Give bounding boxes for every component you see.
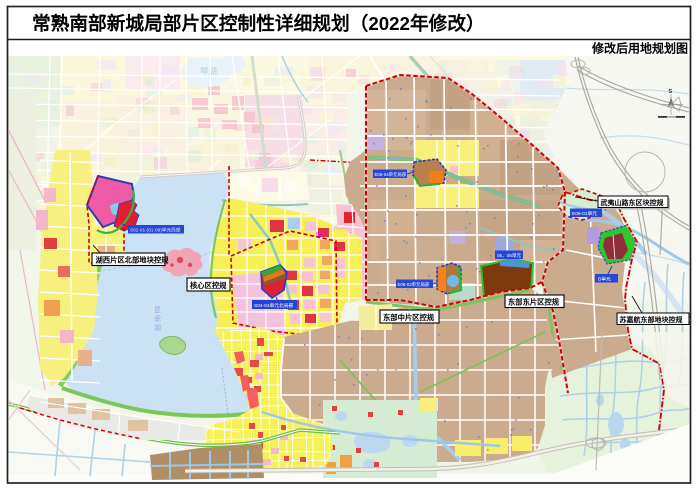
- svg-text:E08-02单元局部: E08-02单元局部: [398, 281, 430, 288]
- svg-text:修改后用地规划图: 修改后用地规划图: [591, 41, 688, 56]
- svg-text:S02-01-(01-09)单元局部: S02-01-(01-09)单元局部: [130, 227, 181, 234]
- svg-text:湖西片区北部地块控规: 湖西片区北部地块控规: [96, 256, 170, 265]
- svg-text:核心区控规: 核心区控规: [190, 281, 227, 290]
- svg-text:东部中片区控规: 东部中片区控规: [383, 313, 435, 322]
- svg-text:S: S: [669, 89, 673, 95]
- svg-text:昆承湖: 昆承湖: [154, 306, 162, 333]
- svg-text:05、06单元: 05、06单元: [497, 252, 521, 259]
- svg-text:苏嘉航东部地块控规: 苏嘉航东部地块控规: [620, 315, 683, 324]
- svg-text:S04-04单元北局部: S04-04单元北局部: [254, 302, 294, 309]
- svg-text:B单元: B单元: [598, 276, 611, 283]
- svg-text:E06-04单元局部: E06-04单元局部: [375, 171, 407, 178]
- svg-text:东部东片区控规: 东部东片区控规: [508, 298, 560, 307]
- svg-text:E09-01单元: E09-01单元: [572, 210, 597, 217]
- svg-text:常熟南部新城局部片区控制性详细规划（2022年修改）: 常熟南部新城局部片区控制性详细规划（2022年修改）: [32, 13, 485, 34]
- svg-text:武夷山路东区块控规: 武夷山路东区块控规: [601, 198, 664, 207]
